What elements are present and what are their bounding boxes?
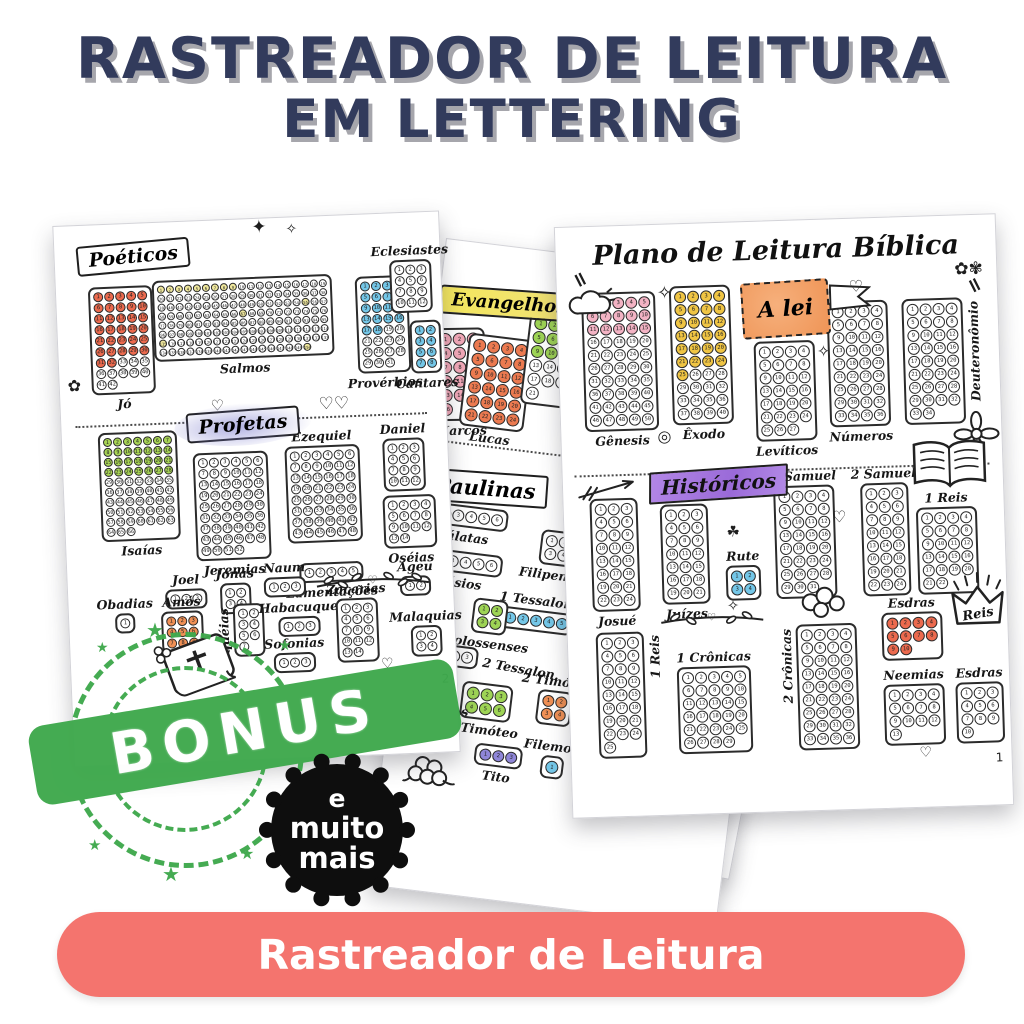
chapter-circle: 8 [871,318,883,330]
chapter-circle: 14 [301,473,311,483]
chapter-circle: 7 [388,465,398,475]
chapter-circle: 42 [255,522,265,532]
chapter-circle: 20 [154,456,163,465]
chapter-circle: 21 [166,294,174,302]
chapter-circle: 9 [887,643,899,655]
chapter-circle: 11 [915,715,927,727]
book-1-reis-2: 1234567891011121314151617181920212223242… [596,631,668,759]
chapter-circle: 97 [168,330,176,338]
heart-icon: ♡♡ [318,393,349,414]
chapter-circle: 11 [399,476,409,486]
chapter-circle: 85 [230,319,238,327]
chapter-circle: 3 [731,583,743,595]
chapter-circle: 137 [186,347,194,355]
book-label: Daniel [379,420,425,437]
chapter-circle: 10 [846,332,858,344]
chapter-circle: 16 [841,667,853,679]
chapter-circle: 6 [93,303,103,313]
chapter-circle: 8 [798,358,810,370]
chapter-circle: 38 [303,517,313,527]
chapter-circle: 135 [168,348,176,356]
chapter-circle: 10 [792,516,804,528]
chapter-circle: 9 [779,517,791,529]
chapter-circle: 19 [667,587,679,599]
chapter-circle: 5 [415,347,425,357]
chapter-circle: 5 [608,516,620,528]
chapter-circle: 9 [721,684,733,696]
chapter-circle: 28 [614,362,626,374]
chapter-circle: 3 [621,503,633,515]
chapter-circle: 46 [326,527,336,537]
star-icon: ✧ [817,341,831,360]
chapter-circle: 96 [159,330,167,338]
chapter-circle: 118 [186,338,194,346]
banner-profetas: Profetas [185,405,300,443]
chapter-circle: 4 [184,284,192,292]
crown-icon: Reis [942,570,1014,636]
chapter-circle: 13 [709,697,721,709]
chapter-circle: 5 [405,275,415,285]
chapter-circle: 9 [410,464,420,474]
chapter-circle: 19 [597,582,609,594]
book-daniel: Daniel123456789101112 [379,420,427,492]
chapter-circle: 6 [934,525,946,537]
chapter-circle: 1 [545,760,559,774]
chapter-circle: 2 [209,457,219,467]
chapter-circle: 6 [792,503,804,515]
chapter-circle: 8 [115,302,125,312]
chapter-circle: 145 [258,344,266,352]
chapter-circle: 13 [596,556,608,568]
book-label: Jonas [215,565,254,582]
chapter-circle: 25 [803,707,815,719]
chapter-circle: 111 [293,325,301,333]
chapter-circle: 24 [630,728,642,740]
chapter-circle: 142 [231,346,239,354]
chapter-circle: 62 [156,516,165,525]
chapter-circle: 21 [95,336,105,346]
chapter-circle: 7 [866,514,878,526]
chapter-circle: 3 [986,686,998,698]
chapter-circle: 11 [785,372,797,384]
chapter-circle: 25 [199,502,209,512]
chapter-circle: 134 [159,348,167,356]
chapter-circle: 22 [106,336,116,346]
chapter-circle: 19 [934,355,946,367]
chapter-circle: 9 [229,283,237,291]
chapter-circle: 51 [116,507,125,516]
chapter-circle: 14 [935,551,947,563]
chapter-circle: 17 [334,471,344,481]
chapter-circle: 11 [933,329,945,341]
book-deuteronomio: 1234567891011121314151617181920212223242… [901,297,986,425]
badge-line-3: mais [299,843,376,873]
chapter-circle: 18 [310,279,318,287]
chapter-circle: 8 [608,529,620,541]
chapter-circle: 12 [345,460,355,470]
chapter-circle: 42 [347,515,357,525]
chapter-circle: 53 [283,298,291,306]
chapter-circle: 31 [96,358,106,368]
chapter-circle: 11 [242,467,252,477]
chapter-circle: 35 [292,289,300,297]
chapter-circle: 31 [829,719,841,731]
chapter-circle: 13 [780,530,792,542]
chapter-circle: 21 [221,490,231,500]
chapter-circle: 3 [947,512,959,524]
chapter-circle: 4 [323,450,333,460]
chapter-circle: 48 [238,300,246,308]
chapter-circle: 23 [860,370,872,382]
chapter-circle: 6 [409,453,419,463]
chapter-circle: 1 [595,504,607,516]
cta-button[interactable]: Rastreador de Leitura [57,912,965,997]
chapter-circle: 19 [199,491,209,501]
chapter-circle: 63 [203,311,211,319]
chapter-circle: 26 [95,347,105,357]
chapter-circle: 24 [715,355,727,367]
chapter-circle: 10 [323,461,333,471]
chapter-circle: 1 [388,500,398,510]
chapter-circle: 20 [735,709,747,721]
chapter-circle: 6 [627,650,639,662]
chapter-circle: 101 [204,329,212,337]
chapter-circle: 5 [907,317,919,329]
chapter-circle: 24 [799,410,811,422]
chapter-circle: 13 [802,668,814,680]
star-icon: ★ [96,640,109,656]
chapter-circle: 17 [676,343,688,355]
chapter-circle: 22 [847,371,859,383]
chapter-circle: 34 [129,357,139,367]
chapter-circle: 57 [319,297,327,305]
book-neemias: Neemias12345678910111213 [883,666,946,746]
chapter-circle: 15 [859,344,871,356]
chapter-circle: 25 [736,722,748,734]
chapter-circle: 133 [321,333,329,341]
book-label: Levíticos [756,442,819,459]
chapter-circle: 21 [629,715,641,727]
chapter-circle: 14 [722,697,734,709]
chapter-circle: 3 [410,499,420,509]
chapter-circle: 34 [233,512,243,522]
chapter-circle: 16 [114,457,123,466]
chapter-circle: 3 [627,637,639,649]
chapter-circle: 21 [923,577,935,589]
chapter-circle: 45 [211,301,219,309]
chapter-circle: 10 [666,548,678,560]
chapter-circle: 4 [721,671,733,683]
chapter-circle: 21 [893,565,905,577]
chapter-circle: 26 [922,381,934,393]
chapter-circle: 42 [184,302,192,310]
chapter-circle: 6 [845,319,857,331]
chapter-circle: 36 [874,409,886,421]
chapter-circle: 1 [731,570,743,582]
star-icon: ✧ [285,221,297,237]
chapter-circle: 29 [835,397,847,409]
chapter-circle: 5 [878,501,890,513]
chapter-circle: 141 [222,346,230,354]
chapter-circle: 32 [874,396,886,408]
chapter-circle: 46 [234,534,244,544]
chapter-circle: 2 [614,637,626,649]
chapter-circle: 7 [211,283,219,291]
chapter-circle: 16 [683,711,695,723]
chapter-circle: 1 [479,748,492,761]
chapter-grid: 1234 [726,565,762,601]
page-number: 1 [995,750,1003,764]
chapter-circle: 27 [221,501,231,511]
chapter-circle: 18 [134,457,143,466]
chapter-circle: 47 [603,414,615,426]
chapter-circle: 25 [139,334,149,344]
book-label: Cantares [396,374,459,391]
chapter-circle: 5 [614,650,626,662]
chapter-circle: 23 [806,555,818,567]
chapter-circle: 23 [614,349,626,361]
chapter-circle: 11 [410,521,420,531]
chapter-circle: 32 [265,290,273,298]
chapter-circle: 11 [683,698,695,710]
chapter-circle: 2 [608,503,620,515]
chapter-circle: 12 [143,446,152,455]
chapter-circle: 29 [627,361,639,373]
chapter-circle: 25 [676,369,688,381]
chapter-circle: 79 [176,321,184,329]
chapter-circle: 20 [639,335,651,347]
chapter-circle: 30 [816,720,828,732]
chapter-circle: 12 [421,521,431,531]
chapter-circle: 8 [421,510,431,520]
chapter-circle: 4 [713,290,725,302]
chapter-circle: 16 [292,280,300,288]
chapter-circle: 48 [256,533,266,543]
book-label: Êxodo [682,426,725,442]
chapter-grid: 123456789101112 [382,437,426,492]
chapter-circle: 23 [710,723,722,735]
chapter-circle: 18 [623,568,635,580]
chapter-circle: 123 [231,337,239,345]
chapter-circle: 13 [866,540,878,552]
chapter-circle: 17 [833,358,845,370]
chapter-circle: 30 [139,345,149,355]
chapter-circle: 8 [399,465,409,475]
chapter-circle: 14 [679,561,691,573]
chapter-circle: 44 [304,528,314,538]
chapter-circle: 2 [554,696,567,709]
chapter-circle: 17 [616,702,628,714]
chapter-circle: 9 [312,461,322,471]
chapter-circle: 27 [697,736,709,748]
chapter-circle: 3 [452,509,465,522]
chapter-circle: 45 [125,497,134,506]
chapter-circle: 23 [335,482,345,492]
chapter-circle: 23 [610,594,622,606]
book-1-cronicas: 1 Crônicas123456789101112131415161718192… [676,648,754,754]
chapter-circle: 149 [294,343,302,351]
chapter-circle: 48 [155,496,164,505]
chapter-circle: 126 [258,336,266,344]
chapter-circle: 31 [256,291,264,299]
chapter-circle: 43 [193,302,201,310]
chapter-circle: 4 [744,583,756,595]
chapter-circle: 7 [595,530,607,542]
chapter-circle: 16 [947,341,959,353]
chapter-circle: 17 [466,394,480,408]
chapter-circle: 16 [819,529,831,541]
chapter-circle: 37 [292,517,302,527]
chapter-circle: 13 [908,343,920,355]
chapter-circle: 22 [478,409,492,423]
chapter-circle: 23 [934,368,946,380]
chapter-circle: 38 [211,523,221,533]
chapter-circle: 147 [276,344,284,352]
chapter-circle: 12 [798,371,810,383]
chapter-circle: 58 [116,517,125,526]
chapter-circle: 21 [362,336,372,346]
chapter-circle: 11 [805,516,817,528]
chapter-circle: 59 [126,517,135,526]
chapter-circle: 1 [198,458,208,468]
chapter-circle: 28 [117,346,127,356]
chapter-circle: 17 [802,681,814,693]
chapter-circle: 104 [231,328,239,336]
chapter-circle: 6 [202,284,210,292]
chapter-circle: 17 [780,543,792,555]
chapter-circle: 13 [760,385,772,397]
chapter-circle: 32 [211,512,221,522]
book-eclesiastes: Eclesiastes123456789101112 [370,241,450,314]
chapter-circle: 14 [815,668,827,680]
chapter-circle: 59 [167,312,175,320]
chapter-circle: 13 [389,533,399,543]
chapter-circle: 2 [236,588,246,598]
chapter-circle: 4 [394,276,404,286]
chapter-circle: 50 [212,545,222,555]
chapter-circle: 17 [923,564,935,576]
chapter-circle: 18 [693,574,705,586]
chapter-circle: 41 [155,486,164,495]
chapter-circle: 19 [493,397,507,411]
circle-doodle-icon: ◎ [657,427,672,446]
chapter-circle: 8 [209,468,219,478]
chapter-circle: 4 [925,616,937,628]
chapter-circle: 66 [230,310,238,318]
star-icon: ✦ [251,216,267,238]
chapter-circle: 64 [212,310,220,318]
chapter-circle: 5 [137,290,147,300]
chapter-circle: 35 [640,374,652,386]
chapter-circle: 22 [773,411,785,423]
chapter-circle: 19 [144,456,153,465]
chapter-circle: 14 [481,382,495,396]
chapter-circle: 1 [674,291,686,303]
chapter-circle: 75 [311,306,319,314]
chapter-circle: 1 [542,694,555,707]
chapter-circle: 38 [691,408,703,420]
chapter-circle: 30 [254,500,264,510]
chapter-circle: 5 [143,436,152,445]
chapter-circle: 5 [472,558,485,571]
chapter-circle: 41 [175,303,183,311]
chapter-circle: 44 [115,497,124,506]
chapter-circle: 27 [313,494,323,504]
chapter-circle: 38 [615,388,627,400]
chapter-circle: 60 [176,312,184,320]
chapter-circle: 110 [284,325,292,333]
chapter-circle: 73 [293,307,301,315]
chapter-circle: 14 [372,314,382,324]
chapter-circle: 43 [293,528,303,538]
chapter-circle: 27 [807,568,819,580]
flower-icon: ✿✾ [954,259,983,280]
chapter-circle: 40 [145,486,154,495]
chapter-circle: 25 [134,467,143,476]
chapter-circle: 2 [973,687,985,699]
chapter-circle: 18 [893,552,905,564]
chapter-circle: 34 [817,733,829,745]
chapter-circle: 98 [177,330,185,338]
chapter-circle: 5 [832,319,844,331]
chapter-circle: 4 [465,510,478,523]
book-jeremias: 1234567891011121314151617181920212223242… [193,451,273,579]
chapter-circle: 6 [900,630,912,642]
chapter-circle: 23 [117,335,127,345]
chapter-circle: 14 [773,385,785,397]
chapter-circle: 11 [615,676,627,688]
star-icon: ★ [162,862,180,886]
chapter-circle: 17 [610,568,622,580]
book-label: Neemias [883,666,944,683]
chapter-circle: 15 [283,280,291,288]
chapter-circle: 31 [589,376,601,388]
chapter-circle: 31 [861,396,873,408]
chapter-circle: 1 [225,588,235,598]
chapter-circle: 1 [360,281,370,291]
chapter-circle: 1 [601,637,613,649]
chapter-circle: 13 [666,561,678,573]
chapter-circle: 12 [692,548,704,560]
chapter-circle: 3 [827,628,839,640]
chapter-circle: 87 [248,318,256,326]
chapter-circle: 21 [834,371,846,383]
chapter-circle: 99 [186,329,194,337]
chapter-circle: 28 [820,568,832,580]
chapter-circle: 32 [303,506,313,516]
chapter-circle: 20 [841,680,853,692]
chapter-circle: 31 [124,477,133,486]
chapter-circle: 29 [803,720,815,732]
chapter-circle: 15 [806,529,818,541]
chapter-circle: 56 [166,505,175,514]
chapter-circle: 4 [817,490,829,502]
chapter-circle: 7 [858,318,870,330]
chapter-circle: 8 [840,641,852,653]
chapter-circle: 33 [614,375,626,387]
chapter-circle: 12 [818,516,830,528]
chapter-circle: 11 [406,297,416,307]
chapter-circle: 78 [167,321,175,329]
chapter-grid: 1234567891011121314151617181920212223242… [88,285,156,395]
chapter-circle: 3 [291,581,301,591]
chapter-circle: 3 [500,342,514,356]
chapter-circle: 117 [177,339,185,347]
chapter-circle: 4 [595,517,607,529]
chapter-circle: 16 [94,325,104,335]
chapter-circle: 49 [629,413,641,425]
chapter-circle: 10 [483,368,497,382]
